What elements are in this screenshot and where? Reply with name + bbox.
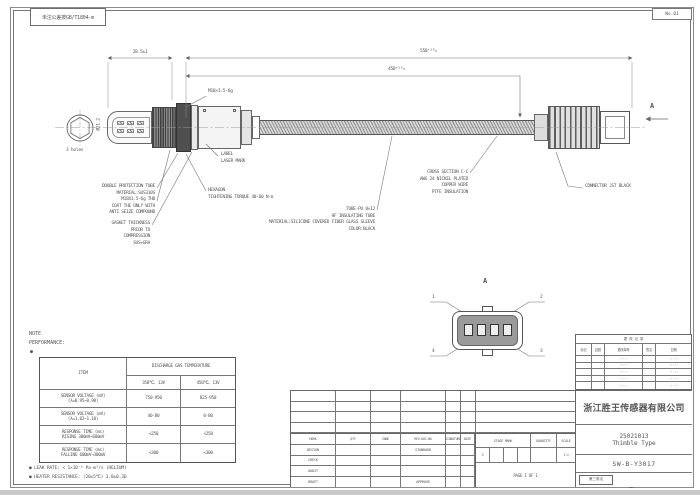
pin-label-4: 4	[432, 349, 435, 354]
revision-cell: ·····	[605, 382, 643, 389]
revision-cell: ·····	[656, 369, 691, 376]
stage-mark-label: STAGE MARK	[476, 434, 531, 448]
parts-cell	[446, 412, 461, 423]
revision-cell	[643, 369, 656, 376]
sign-cell	[446, 466, 461, 477]
revision-cell	[643, 376, 656, 383]
parts-cell	[476, 423, 575, 434]
page-label: PAGE 1 OF 1	[476, 463, 575, 488]
parts-cell	[401, 402, 446, 413]
dim-cable: 450⁺⁵⁰₀	[388, 67, 405, 72]
perf-row-value: 40-80	[127, 408, 181, 426]
model-cell: 25021013 Thimble Type	[576, 425, 692, 455]
stage-cell	[504, 448, 518, 463]
parts-cell	[446, 423, 461, 434]
dim-d1: 28.5±1	[118, 50, 162, 55]
sign-cell	[371, 477, 401, 488]
leader-wire	[470, 136, 497, 173]
stage-mark-value: S	[476, 448, 490, 463]
parts-cell	[371, 423, 401, 434]
perf-item-header: ITEM	[40, 358, 127, 390]
parts-cell	[476, 391, 575, 402]
scale-value: 1:1	[557, 448, 575, 463]
revision-cell	[592, 356, 605, 363]
parts-cell	[461, 412, 476, 423]
perf-row-value: <250	[181, 426, 235, 444]
leader-thread	[186, 96, 206, 107]
leader-label	[206, 144, 218, 156]
note-bullet: ●	[30, 349, 33, 355]
callout-gasket: GASKET THICKNESS PRIOR TO COMPRESSION SU…	[58, 221, 150, 247]
perf-row-value: <250	[127, 426, 181, 444]
connector-pin	[477, 324, 486, 336]
sign-cell	[446, 456, 461, 467]
revision-cell: ·····	[656, 376, 691, 383]
revision-cell: ·····	[605, 356, 643, 363]
leader-connector	[556, 152, 583, 188]
parts-cell	[461, 391, 476, 402]
parts-cell	[371, 412, 401, 423]
parts-list-grid	[290, 390, 575, 433]
dim-thread: M18×1.5-6g	[208, 89, 233, 94]
perf-row-value: <300	[127, 444, 181, 462]
sign-cell	[461, 445, 475, 456]
revision-col-label: 标记	[576, 344, 592, 356]
parts-cell	[336, 402, 371, 413]
titleblock-header-cell: REV.DOC.NO	[401, 434, 446, 445]
drawing-number: SW-B-Y3017	[576, 455, 692, 473]
quantity-value	[531, 448, 557, 463]
titleblock-header-cell: SIGNATURE	[446, 434, 461, 445]
parts-cell	[401, 391, 446, 402]
perf-subcol-1: 350℃、13V	[127, 376, 181, 390]
revision-cell	[643, 382, 656, 389]
perf-row-item: SENSOR VOLTAGE (mV) (λ=1.02~1.10)	[40, 408, 127, 426]
leak-rate-note: ● LEAK RATE: < 1×10⁻⁶ Pa·m³/s (HELIUM)	[29, 466, 127, 471]
company-block: 浙江胜王传感器有限公司 25021013 Thimble Type SW-B-Y…	[575, 390, 692, 487]
revision-col-label: 日期	[656, 344, 691, 356]
perf-group-header: DISCHARGE GAS TEMPERATURE	[127, 358, 235, 376]
stage-cell	[518, 448, 531, 463]
perf-row-value: 750-950	[127, 390, 181, 408]
revision-cell: ·····	[656, 356, 691, 363]
connector-pin	[490, 324, 499, 336]
parts-cell	[291, 423, 336, 434]
connector-pin	[464, 324, 473, 336]
leader-thread-note	[157, 150, 170, 201]
projection-method-box: 第三角法	[579, 475, 613, 485]
stage-cell	[490, 448, 504, 463]
titleblock-header-cell: DATE	[461, 434, 475, 445]
revision-table: 更 改 记 录 标记 处数 更改单号 签名 日期 ····· ····· ···…	[575, 334, 692, 390]
stage-block: STAGE MARK QUANTITY SCALE S 1:1 PAGE 1 O…	[475, 433, 575, 487]
sign-cell	[371, 445, 401, 456]
company-name: 浙江胜王传感器有限公司	[576, 391, 692, 425]
connector-pin	[503, 324, 512, 336]
sign-role: DESIGN	[291, 445, 336, 456]
parts-cell	[461, 423, 476, 434]
section-label: A	[650, 102, 654, 110]
revision-cell	[576, 356, 592, 363]
parts-cell	[371, 391, 401, 402]
revision-cell: ·····	[656, 363, 691, 370]
sign-role: DRAFT	[291, 477, 336, 488]
sign-role2	[401, 466, 446, 477]
parts-cell	[401, 423, 446, 434]
revision-cell: ·····	[605, 363, 643, 370]
model-number: 25021013	[620, 433, 649, 440]
revision-cell	[592, 369, 605, 376]
sign-role: AUDIT	[291, 466, 336, 477]
callout-wire: CROSS SECTION C-C AWG 24 NICKEL PLATED C…	[365, 170, 468, 196]
revision-cell: ·····	[605, 369, 643, 376]
pin-label-1: 1	[432, 295, 435, 300]
sign-role: CHECK	[291, 456, 336, 467]
parts-cell	[401, 412, 446, 423]
parts-cell	[371, 402, 401, 413]
revision-cell: ·····	[656, 382, 691, 389]
sign-cell	[461, 466, 475, 477]
revision-cell	[576, 363, 592, 370]
detail-leader-tr	[513, 302, 545, 312]
perf-row-value: 0-80	[181, 408, 235, 426]
callout-connector: CONNECTOR JST BLACK	[585, 184, 631, 191]
callout-protection-tube: DOUBLE PROTECTION TUBE MATERIAL:SUS310S	[50, 184, 155, 197]
product-type: Thimble Type	[612, 440, 655, 447]
parts-cell	[336, 423, 371, 434]
parts-cell	[336, 391, 371, 402]
scale-label: SCALE	[557, 434, 575, 448]
parts-cell	[476, 402, 575, 413]
parts-cell	[291, 402, 336, 413]
sign-cell	[336, 466, 371, 477]
heater-resistance-note: ● HEATER RESISTANCE: (20±5℃) 3.0±0.3Ω	[29, 475, 126, 480]
perf-row-value: <300	[181, 444, 235, 462]
parts-cell	[291, 412, 336, 423]
pin-label-3: 3	[540, 349, 543, 354]
parts-cell	[291, 391, 336, 402]
revision-col-label: 更改单号	[605, 344, 643, 356]
hex-view-note: 3 holes	[66, 148, 83, 153]
dim-overall: 550⁺⁵⁰₀	[420, 49, 437, 54]
sign-cell	[336, 445, 371, 456]
revision-col-label: 签名	[643, 344, 656, 356]
projection-method-label: 第三角法	[589, 477, 603, 482]
revision-cell	[592, 382, 605, 389]
note-subtitle: PERFORMANCE:	[29, 340, 65, 346]
signature-grid: MARK QTY ZONE REV.DOC.NO SIGNATURE DATE …	[290, 433, 475, 487]
revision-cell	[576, 376, 592, 383]
sign-cell	[446, 477, 461, 488]
callout-sleeve: TUBE-PU 8×12 HF INSULATING TUBE MATERIAL…	[190, 207, 375, 233]
titleblock-header-cell: ZONE	[371, 434, 401, 445]
pin-label-2: 2	[540, 295, 543, 300]
callout-thread-note: M18X1.5-6g THD COAT THE ONLY WITH ANTI S…	[50, 197, 155, 217]
revision-cell	[592, 363, 605, 370]
revision-cell	[576, 382, 592, 389]
revision-cell: ·····	[605, 376, 643, 383]
perf-row-item: RESPONSE TIME (ms) RISING 300mV→600mV	[40, 426, 127, 444]
performance-table: ITEM DISCHARGE GAS TEMPERATURE 350℃、13V …	[39, 357, 236, 463]
sign-cell	[336, 477, 371, 488]
sign-cell	[371, 466, 401, 477]
perf-subcol-2: 450℃、13V	[181, 376, 235, 390]
revision-cell	[576, 369, 592, 376]
sign-role2: STANDARD	[401, 445, 446, 456]
sign-role2	[401, 456, 446, 467]
parts-cell	[446, 391, 461, 402]
revision-col-label: 处数	[592, 344, 605, 356]
parts-cell	[476, 412, 575, 423]
sign-role2: APPROVE	[401, 477, 446, 488]
leader-hexagon	[186, 154, 206, 191]
revision-cell	[643, 363, 656, 370]
revision-cell	[592, 376, 605, 383]
revision-header: 更 改 记 录	[576, 335, 691, 344]
revision-cell	[643, 356, 656, 363]
perf-row-value: 825-950	[181, 390, 235, 408]
sign-cell	[371, 456, 401, 467]
perf-row-item: RESPONSE TIME (ms) FALLING 600mV→300mV	[40, 444, 127, 462]
titleblock-header-cell: MARK	[291, 434, 336, 445]
note-title: NOTE	[29, 331, 41, 337]
sign-cell	[446, 445, 461, 456]
sign-cell	[461, 456, 475, 467]
sign-cell	[461, 477, 475, 488]
callout-hexagon: HEXAGON TIGHTENING TORQUE 40-60 N·m	[208, 188, 273, 201]
parts-cell	[446, 402, 461, 413]
perf-row-item: SENSOR VOLTAGE (mV) (λ=0.95~0.98)	[40, 390, 127, 408]
parts-cell	[336, 412, 371, 423]
quantity-label: QUANTITY	[531, 434, 557, 448]
sign-cell	[336, 456, 371, 467]
titleblock-header-cell: QTY	[336, 434, 371, 445]
detail-view-label: A	[483, 277, 487, 285]
parts-cell	[461, 402, 476, 413]
connector-face-tab-bottom	[482, 349, 493, 356]
dim-tube-diameter: Ø21.2	[97, 112, 102, 138]
callout-label-mark: LABEL LASER MARK	[221, 152, 245, 165]
